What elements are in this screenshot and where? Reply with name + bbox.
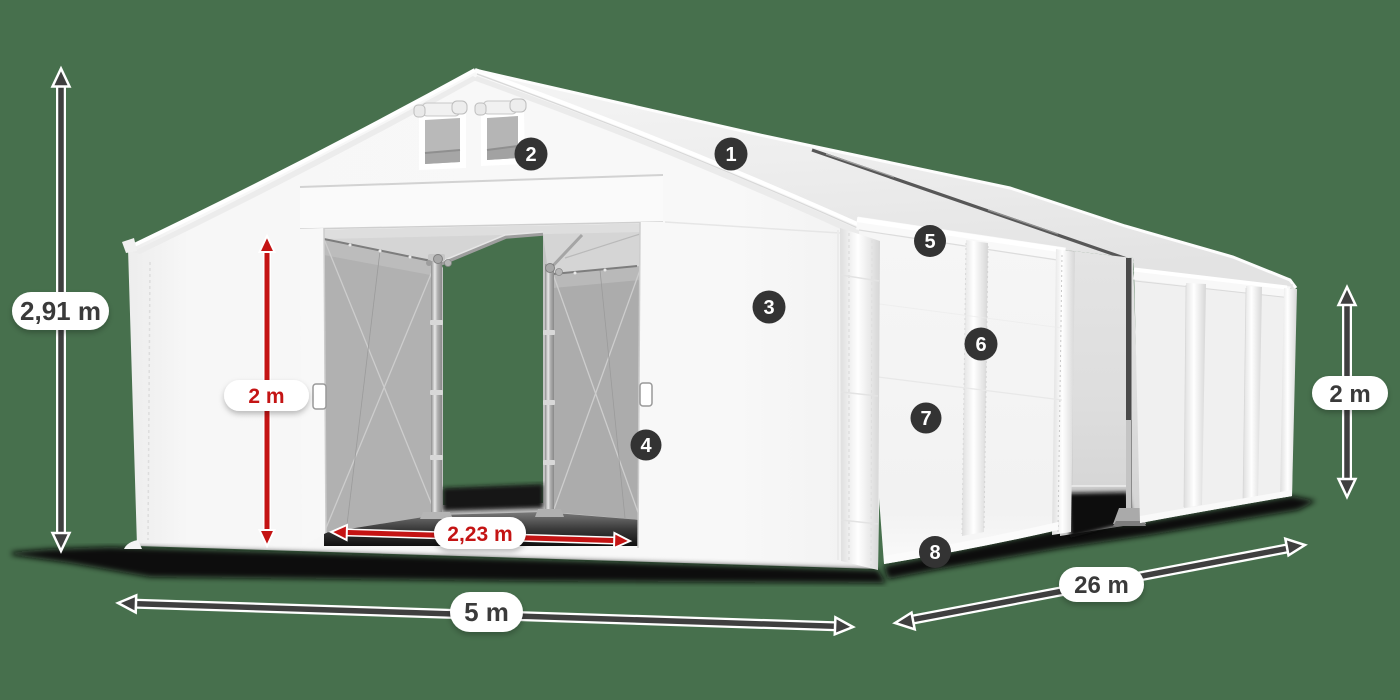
svg-text:2,23 m: 2,23 m [447, 523, 512, 546]
svg-text:2 m: 2 m [248, 385, 284, 408]
svg-text:6: 6 [975, 334, 986, 356]
svg-text:3: 3 [763, 297, 774, 319]
svg-text:7: 7 [920, 408, 931, 430]
svg-text:5 m: 5 m [464, 597, 509, 627]
svg-text:2 m: 2 m [1329, 381, 1370, 408]
svg-text:4: 4 [640, 435, 652, 457]
svg-text:2,91 m: 2,91 m [20, 296, 101, 326]
svg-text:2: 2 [525, 144, 536, 166]
svg-text:26 m: 26 m [1074, 572, 1129, 599]
svg-text:1: 1 [725, 144, 736, 166]
svg-text:5: 5 [924, 231, 935, 253]
svg-text:8: 8 [929, 542, 940, 564]
